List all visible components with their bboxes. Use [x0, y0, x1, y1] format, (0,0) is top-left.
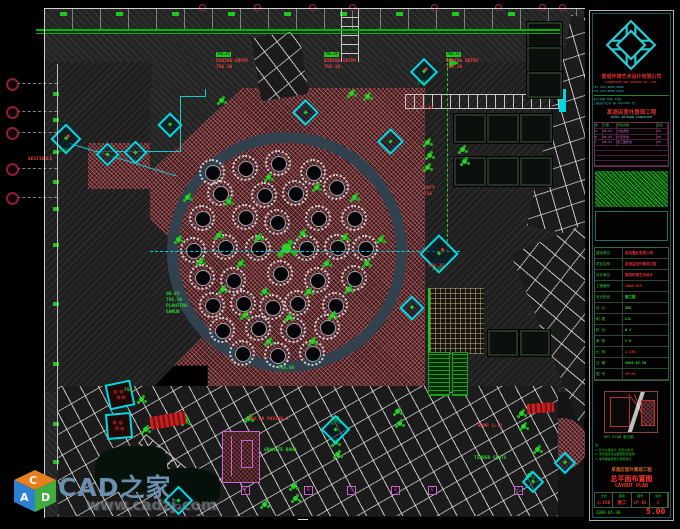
cover-strip-bottom: [0, 518, 680, 529]
plant-icon: [242, 313, 247, 318]
revision-cell: A: [595, 129, 603, 134]
field-row: 建设单位某某置业有限公司: [595, 248, 668, 259]
round-table: [265, 150, 291, 176]
round-table: [293, 235, 319, 261]
grid-dot: [254, 4, 261, 11]
bottom-cell-label: 图号: [632, 493, 649, 500]
round-table: [251, 182, 277, 208]
plant-icon: [378, 237, 383, 242]
grid-connector: [17, 197, 57, 198]
note-line: 3.未尽事宜按现行规范执行: [595, 457, 669, 462]
watermark-cube-logo: C A D: [12, 468, 58, 514]
round-table: [341, 205, 367, 231]
cad-drawing-viewport: 2.501.501.50 758.15DINING ENTRY756.30758…: [0, 0, 680, 529]
grid-dot: [559, 4, 566, 11]
grid-bubble: [6, 163, 19, 176]
company-logo-icon: [605, 19, 657, 71]
trim-mark-bottom: [298, 519, 308, 520]
bottom-cell-value: LP-01: [632, 500, 649, 507]
round-table: [232, 204, 258, 230]
field-value: 某某置业有限公司: [623, 248, 668, 258]
round-table: [232, 155, 258, 181]
table-top: [305, 346, 321, 362]
plant-icon: [286, 315, 291, 320]
field-value: 施工图: [623, 292, 668, 302]
field-row: 设 计ZHG: [595, 303, 668, 314]
round-table: [341, 265, 367, 291]
table-top: [329, 180, 345, 196]
round-table: [280, 317, 306, 343]
company-name-en: LANDSCAPE ART DESIGN CO.,LTD.: [590, 80, 673, 84]
table-top: [273, 266, 289, 282]
grid-bubble: [6, 192, 19, 205]
plant-icon: [352, 195, 357, 200]
round-table: [212, 234, 238, 260]
grid-dot: [539, 4, 546, 11]
revision-cell: B: [595, 135, 603, 140]
annotation-label: 756.35: [428, 264, 444, 270]
revision-cell: C: [595, 140, 603, 145]
table-top: [286, 323, 302, 339]
signature-box: [595, 211, 668, 241]
annotation-line: SHRUB: [166, 310, 188, 316]
annotation-line: 758.15: [216, 52, 231, 57]
key-plan-site: [641, 400, 655, 426]
grid-tick: [53, 207, 59, 211]
annotation-line: TIMBER SEATS: [474, 456, 507, 462]
plant-icon: [314, 185, 319, 190]
revision-cell: ZH: [657, 129, 668, 134]
field-label: 项目名称: [595, 259, 623, 269]
setback-line: [447, 58, 448, 252]
field-row: 工程编号2008-015: [595, 281, 668, 292]
paving-keynote: C: [347, 486, 356, 495]
plant-icon: [198, 259, 203, 264]
grid-dot: [495, 4, 502, 11]
issue-date: 2008-05-30: [596, 510, 620, 515]
grid-tick: [53, 243, 59, 247]
plant-icon: [462, 159, 467, 164]
round-table: [282, 180, 308, 206]
field-value: 1:150: [623, 347, 668, 357]
revision-header-cell: 日期: [603, 123, 617, 128]
bottom-cell-label: 图别: [613, 493, 630, 500]
grid-tick: [53, 422, 59, 426]
project-name-en: HOTEL OUTDOOR LANDSCAPE: [590, 115, 673, 119]
grid-bubble: [6, 78, 19, 91]
annotation-label: P1 A2: [420, 106, 434, 112]
table-top: [347, 271, 363, 287]
field-label: 审 核: [595, 336, 623, 346]
field-label: 设计阶段: [595, 292, 623, 302]
grid-dot: [349, 4, 356, 11]
grid-connector: [17, 111, 57, 112]
plant-icon: [425, 165, 430, 170]
watermark-url: www.cadzj.com: [86, 496, 216, 514]
field-row: 制 图LYL: [595, 314, 668, 325]
plant-icon: [395, 409, 400, 414]
round-table: [305, 205, 331, 231]
annotation-line: PLANTING: [166, 304, 188, 310]
plant-icon: [238, 261, 243, 266]
center-plant-icon: [282, 244, 292, 254]
field-value: W J: [623, 325, 668, 335]
bottom-cell: 图号LP-01: [632, 493, 650, 507]
key-plan-label: KEY PLAN 索引图: [604, 435, 633, 440]
company-contact-2: FAX 020-8888 6666: [593, 90, 670, 94]
leader-seg-4: [205, 89, 206, 97]
round-table: [323, 174, 349, 200]
annotation-label: 758.00: [278, 366, 294, 372]
notes-list: 注:1.尺寸以毫米计 标高以米计2.须与相关专业图纸配合使用3.未尽事宜按现行规…: [595, 443, 669, 461]
round-table: [199, 292, 225, 318]
bottom-cell-value: 1:150: [595, 500, 612, 507]
svg-text:C: C: [29, 474, 37, 487]
approval-stamp: [595, 171, 668, 207]
plant-icon: [364, 261, 369, 266]
tree-grate-canopy: [112, 420, 116, 424]
grid-dot: [309, 4, 316, 11]
annotation-label: VESTIBULE: [28, 157, 52, 163]
grid-bubble: [6, 106, 19, 119]
paving-keynote: B: [304, 486, 313, 495]
grid-tick: [53, 150, 59, 154]
table-top: [358, 241, 374, 257]
car-symbol-2: [527, 402, 555, 414]
plant-icon: [427, 153, 432, 158]
annotation-line: P1 A2: [420, 106, 434, 112]
revision-header-cell: 版: [595, 123, 603, 128]
circle-axis-line: [150, 251, 460, 252]
plant-icon: [535, 447, 540, 452]
plant-icon: [460, 147, 465, 152]
table-top: [251, 321, 267, 337]
annotation-line: 756.30: [216, 65, 249, 71]
revision-cell: 08.03: [603, 129, 617, 134]
revision-table: 版日期修改内容签名A08.03方案调整ZHB08.04扩初修改ZHC08.05施…: [594, 122, 669, 167]
field-row: 校 对W J: [595, 325, 668, 336]
field-row: 设计单位景观环境艺术设计: [595, 270, 668, 281]
property-line-inner: [36, 33, 560, 34]
annotation-label: GRANITE BAND: [264, 448, 297, 454]
sheet-title-en: LAYOUT PLAN: [590, 483, 673, 489]
table-top: [265, 300, 281, 316]
grid-tick: [53, 180, 59, 184]
table-top: [310, 273, 326, 289]
grid-line-vertical: [57, 64, 58, 470]
table-top: [215, 323, 231, 339]
plant-icon: [519, 411, 524, 416]
field-row: 图 号LP-01: [595, 369, 668, 380]
revision-header-cell: 签名: [657, 123, 668, 128]
grid-bubble: [6, 127, 19, 140]
title-block: 景观环境艺术设计有限公司 LANDSCAPE ART DESIGN CO.,LT…: [589, 10, 674, 521]
field-row: 审 核C H: [595, 336, 668, 347]
table-top: [347, 211, 363, 227]
plant-icon: [521, 424, 526, 429]
revision-cell: 施工图修改: [617, 140, 657, 145]
table-top: [330, 240, 346, 256]
bottom-cell: 比例1:150: [595, 493, 613, 507]
leader-seg-3: [180, 96, 206, 97]
annotation-line: DINING ENTRY: [446, 59, 479, 65]
plant-icon: [219, 98, 224, 103]
plant-icon: [216, 233, 221, 238]
plant-icon: [365, 94, 370, 99]
bottom-cell-label: 版次: [650, 493, 667, 500]
plant-icon: [425, 140, 430, 145]
plant-icon: [342, 235, 347, 240]
annotation-line: DINING ENTRY: [324, 59, 357, 65]
project-line: 某酒店室外景观工程: [590, 467, 673, 473]
key-plan-outline: [610, 397, 630, 427]
table-top: [236, 296, 252, 312]
table-top: [271, 156, 287, 172]
plant-icon: [346, 287, 351, 292]
table-top: [235, 346, 251, 362]
table-top: [288, 186, 304, 202]
table-top: [195, 270, 211, 286]
field-label: 日 期: [595, 358, 623, 368]
revision-cell: 08.05: [603, 140, 617, 145]
pump-room-wall-1: [231, 436, 232, 476]
field-row: 日 期2008.05.30: [595, 358, 668, 369]
grid-dot: [431, 4, 438, 11]
field-label: 制 图: [595, 314, 623, 324]
annotation-line: 756.35: [428, 264, 444, 270]
plant-icon: [176, 237, 181, 242]
field-label: 建设单位: [595, 248, 623, 258]
bottom-cell-value: 施工: [613, 500, 630, 507]
revision-cell: 扩初修改: [617, 135, 657, 140]
field-value: LP-01: [623, 369, 668, 379]
pump-room-wall-2: [241, 440, 253, 468]
grid-connector: [17, 132, 57, 133]
revision-number: 5.00: [646, 507, 665, 516]
grid-tick: [53, 92, 59, 96]
field-label: 比 例: [595, 347, 623, 357]
grid-connector: [17, 168, 57, 169]
table-top: [205, 298, 221, 314]
field-value: C H: [623, 336, 668, 346]
revision-cell: ZH: [657, 140, 668, 145]
plant-icon: [143, 427, 148, 432]
table-top: [299, 241, 315, 257]
table-top: [328, 298, 344, 314]
revision-row-empty: [595, 161, 668, 166]
revision-header-cell: 修改内容: [617, 123, 657, 128]
revision-cell: ZH: [657, 135, 668, 140]
divider-green: [594, 95, 669, 96]
round-table: [189, 264, 215, 290]
grid-tick: [53, 118, 59, 122]
annotation-label: 758.15DINING ENTRY756.30: [446, 40, 479, 71]
svg-text:D: D: [41, 491, 50, 504]
plant-icon: [397, 421, 402, 426]
plant-icon: [185, 195, 190, 200]
bottom-cell: 图别施工: [613, 493, 631, 507]
annotation-line: DINING ENTRY: [216, 59, 249, 65]
table-top: [311, 211, 327, 227]
round-table: [229, 340, 255, 366]
paving-keynote: E: [428, 486, 437, 495]
plant-icon: [220, 287, 225, 292]
plant-icon: [266, 339, 271, 344]
plant-icon: [266, 175, 271, 180]
table-top: [195, 211, 211, 227]
annotation-line: 756.00 PAVING A: [248, 417, 289, 423]
table-top: [290, 296, 306, 312]
field-value: 某酒店室外景观工程: [623, 259, 668, 269]
field-label: 图 号: [595, 369, 623, 379]
table-top: [238, 210, 254, 226]
plant-icon: [306, 289, 311, 294]
annotation-label: 756: [124, 388, 132, 394]
tree-grate-2: [105, 412, 133, 440]
grid-tick: [53, 302, 59, 306]
plant-icon: [256, 235, 261, 240]
revision-cell: 方案调整: [617, 129, 657, 134]
field-label: 校 对: [595, 325, 623, 335]
grid-connector: [17, 83, 57, 84]
bottom-cell-label: 比例: [595, 493, 612, 500]
annotation-label: GD-01756.30PLANTINGSHRUB: [166, 292, 188, 315]
paving-keynote: A: [241, 486, 250, 495]
tree-grate-canopy: [113, 390, 118, 395]
plant-icon: [262, 502, 267, 507]
grid-dot: [199, 4, 206, 11]
revision-cell: 08.04: [603, 135, 617, 140]
annotation-label: 758.15DINING ENTRY756.30: [324, 40, 357, 71]
round-table: [284, 290, 310, 316]
plant-icon: [324, 261, 329, 266]
field-value: 2008-015: [623, 281, 668, 291]
round-table: [189, 205, 215, 231]
field-value: LYL: [623, 314, 668, 324]
round-table: [352, 235, 378, 261]
round-table: [264, 209, 290, 235]
grid-tick: [53, 460, 59, 464]
plant-icon: [293, 496, 298, 501]
table-top: [251, 241, 267, 257]
annotation-line: 756: [424, 192, 435, 198]
annotation-label: RAMP 1:12: [478, 424, 502, 430]
plant-icon: [291, 484, 296, 489]
table-top: [238, 161, 254, 177]
annotation-line: 758.15: [324, 52, 339, 57]
annotation-line: 756: [124, 388, 132, 394]
annotation-label: 756.00 PAVING A: [248, 417, 289, 423]
plant-icon: [226, 199, 231, 204]
plant-icon: [262, 289, 267, 294]
plant-icon: [330, 313, 335, 318]
table-top: [270, 348, 286, 364]
annotation-line: DUTY: [424, 186, 435, 192]
annotation-line: RAMP 1:12: [478, 424, 502, 430]
grid-tick: [53, 362, 59, 366]
tree-grate-1: [105, 380, 136, 411]
pump-room: [222, 431, 260, 483]
round-table: [264, 342, 290, 368]
field-row: 设计阶段施工图: [595, 292, 668, 303]
company-name: 景观环境艺术设计有限公司: [590, 73, 673, 80]
bottom-cell-value: C: [650, 500, 667, 507]
plant-icon: [139, 397, 144, 402]
paving-keynote: F: [514, 486, 523, 495]
field-label: 设 计: [595, 303, 623, 313]
annotation-line: 756.30: [446, 65, 479, 71]
table-top: [257, 188, 273, 204]
table-top: [226, 273, 242, 289]
round-table: [300, 159, 326, 185]
field-row: 项目名称某酒店室外景观工程: [595, 259, 668, 270]
annotation-label: 758.15DINING ENTRY756.30: [216, 40, 249, 71]
table-top: [205, 165, 221, 181]
field-label: 设计单位: [595, 270, 623, 280]
annotation-line: 758.00: [278, 366, 294, 372]
table-top: [270, 215, 286, 231]
bottom-grid: 比例1:150图别施工图号LP-01版次C: [594, 492, 669, 508]
fields-table: 建设单位某某置业有限公司项目名称某酒店室外景观工程设计单位景观环境艺术设计工程编…: [594, 247, 669, 381]
field-value: 景观环境艺术设计: [623, 270, 668, 280]
table-top: [218, 240, 234, 256]
company-cert-2: 工程设计证书 第 A123456 号: [593, 102, 670, 106]
round-table: [209, 317, 235, 343]
plant-icon: [335, 452, 340, 457]
keynote-elevation: 1.50: [412, 80, 432, 85]
round-table: [314, 314, 340, 340]
round-table: [245, 315, 271, 341]
annotation-line: GRANITE BAND: [264, 448, 297, 454]
round-table: [267, 260, 293, 286]
annotation-line: 758.15: [446, 52, 461, 57]
plant-icon: [310, 339, 315, 344]
svg-text:A: A: [20, 491, 29, 504]
field-label: 工程编号: [595, 281, 623, 291]
bottom-cell: 版次C: [650, 493, 668, 507]
table-top: [306, 165, 322, 181]
table-top: [320, 320, 336, 336]
field-row: 比 例1:150: [595, 347, 668, 358]
annotation-line: 756.30: [324, 65, 357, 71]
annotation-label: TIMBER SEATS: [474, 456, 507, 462]
key-plan: [604, 391, 658, 433]
field-value: ZHG: [623, 303, 668, 313]
annotation-label: DUTY756: [424, 186, 435, 198]
plant-icon: [349, 91, 354, 96]
paving-keynote: D: [391, 486, 400, 495]
plant-icon: [300, 231, 305, 236]
property-line-outer: [36, 29, 560, 31]
annotation-line: VESTIBULE: [28, 157, 52, 163]
field-value: 2008.05.30: [623, 358, 668, 368]
